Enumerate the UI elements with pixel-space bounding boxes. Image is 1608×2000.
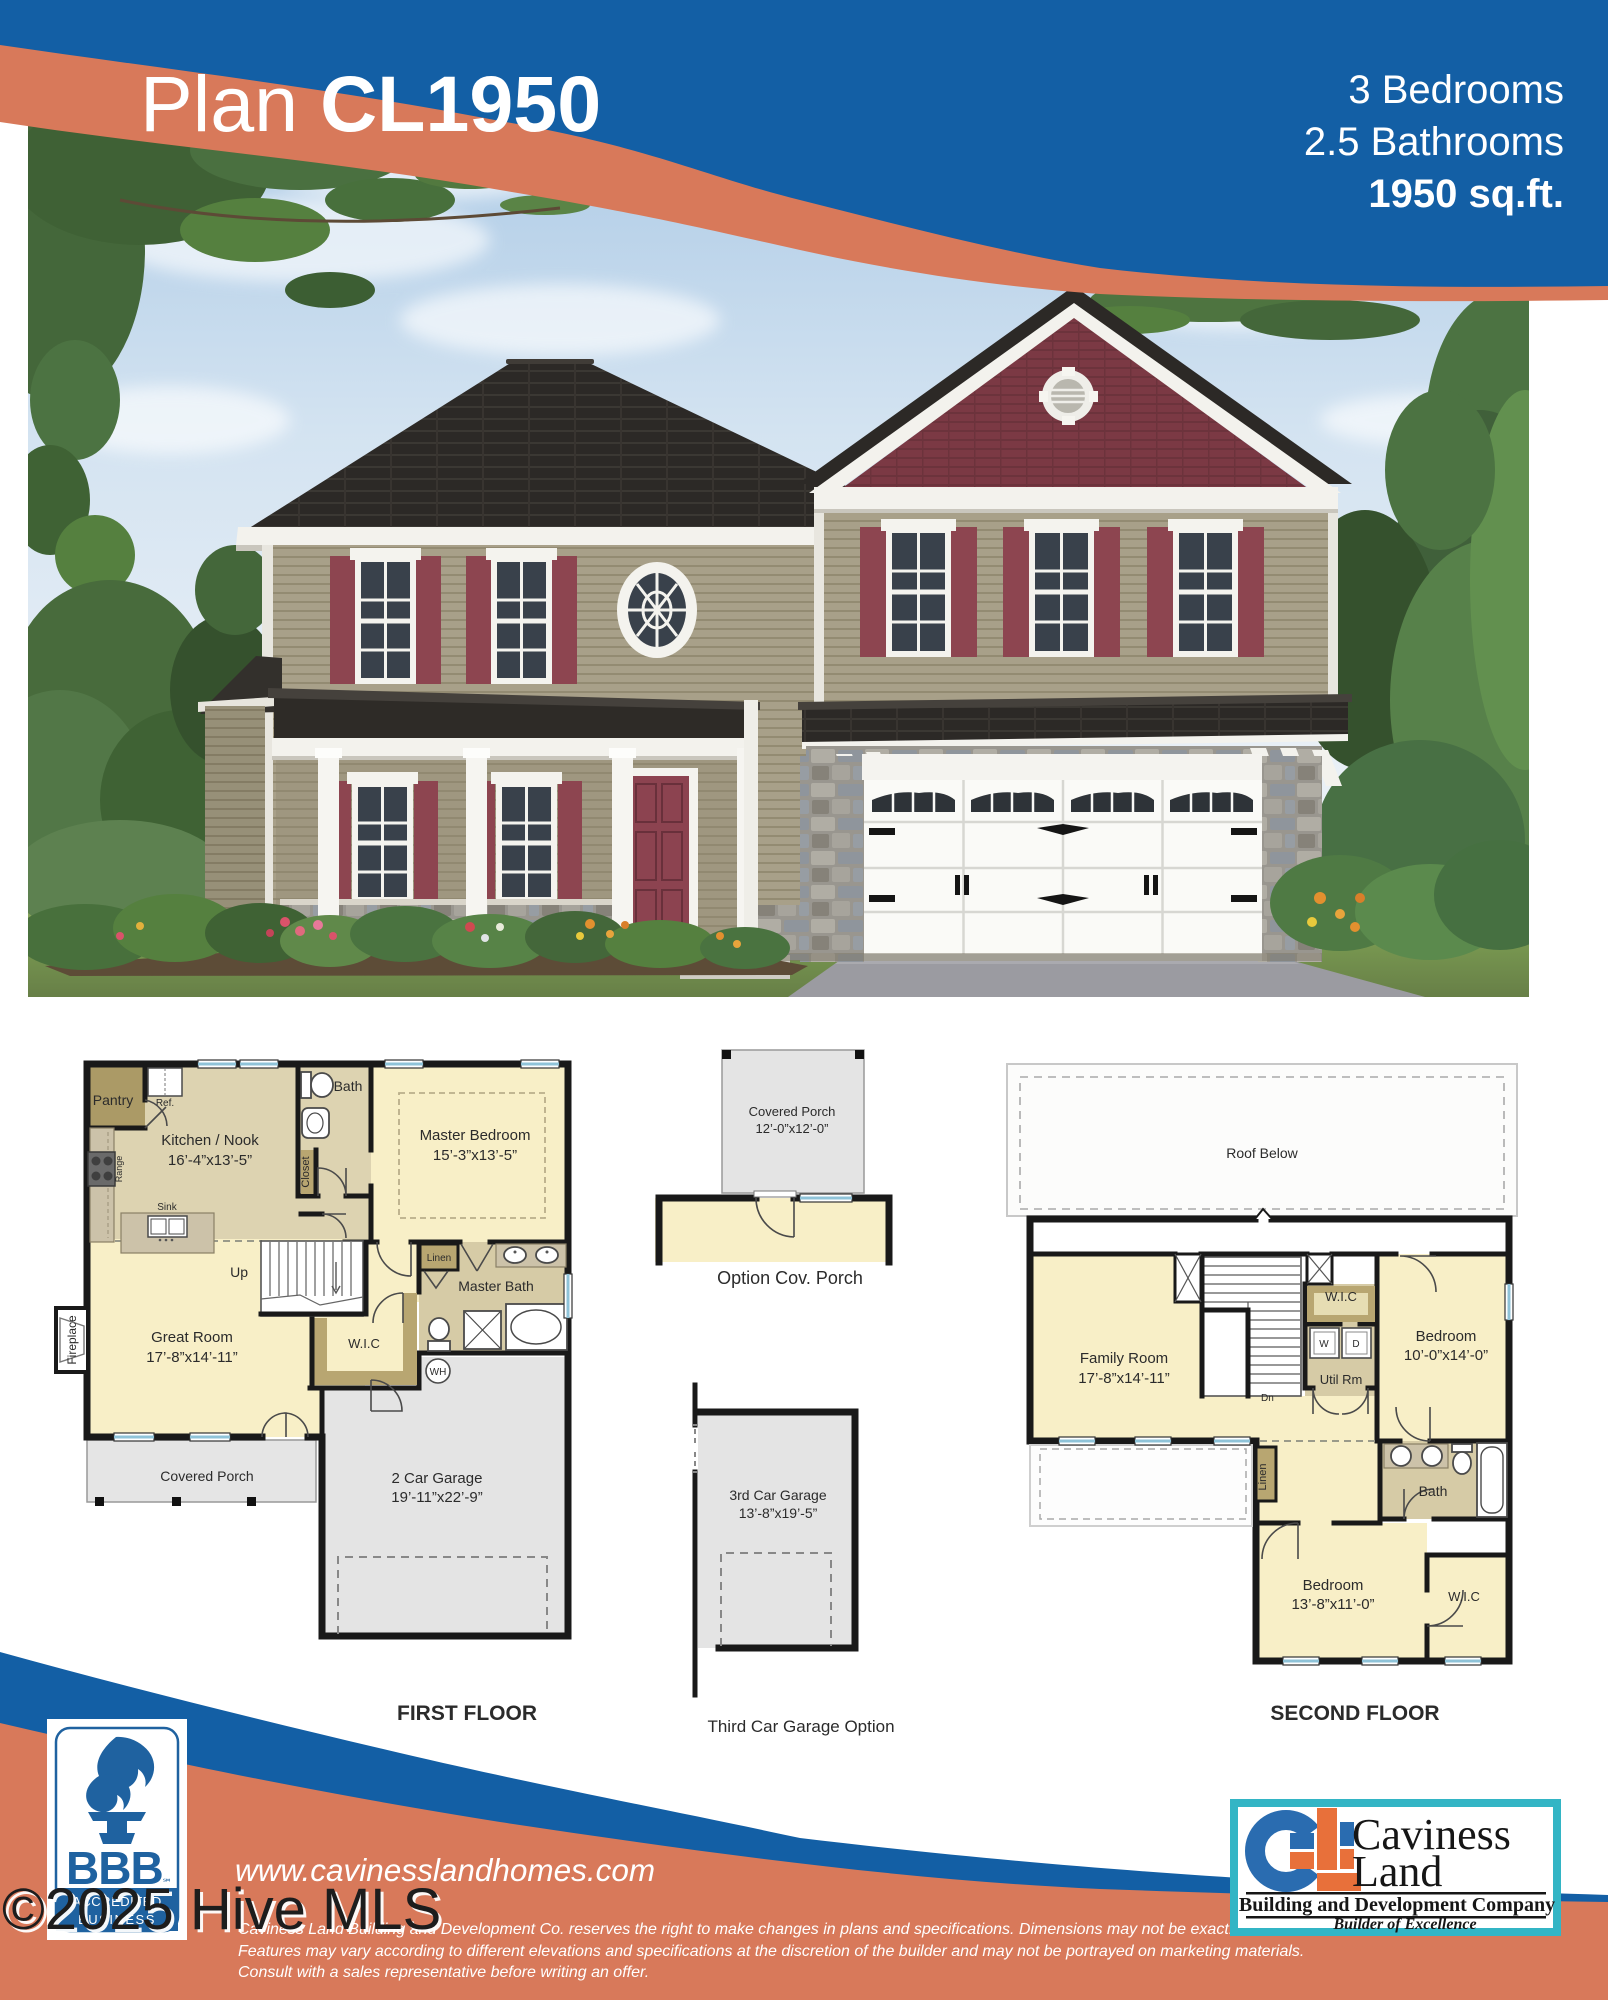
svg-text:Kitchen / Nook: Kitchen / Nook xyxy=(161,1132,259,1149)
svg-text:17’-8”x14’-11”: 17’-8”x14’-11” xyxy=(146,1349,237,1366)
svg-text:Bath: Bath xyxy=(334,1078,363,1094)
svg-text:3 Bedrooms: 3 Bedrooms xyxy=(1348,68,1564,112)
svg-text:Sink: Sink xyxy=(157,1202,177,1213)
svg-text:W.I.C: W.I.C xyxy=(348,1336,380,1351)
svg-text:1950 sq.ft.: 1950 sq.ft. xyxy=(1368,172,1564,216)
svg-text:Land: Land xyxy=(1352,1847,1442,1896)
svg-text:15’-3”x13’-5”: 15’-3”x13’-5” xyxy=(433,1147,517,1164)
svg-text:16’-4”x13’-5”: 16’-4”x13’-5” xyxy=(168,1152,252,1169)
svg-text:Pantry: Pantry xyxy=(93,1092,133,1108)
svg-text:Roof Below: Roof Below xyxy=(1226,1145,1298,1161)
svg-text:Range: Range xyxy=(114,1156,124,1183)
svg-text:Option Cov. Porch: Option Cov. Porch xyxy=(717,1268,863,1288)
svg-text:Plan CL1950: Plan CL1950 xyxy=(140,59,601,148)
svg-text:Linen: Linen xyxy=(427,1253,451,1264)
svg-text:Util Rm: Util Rm xyxy=(1320,1372,1363,1387)
svg-text:Closet: Closet xyxy=(300,1156,312,1187)
svg-text:D: D xyxy=(1352,1339,1359,1350)
svg-text:Builder of Excellence: Builder of Excellence xyxy=(1332,1916,1476,1933)
svg-text:19’-11”x22’-9”: 19’-11”x22’-9” xyxy=(391,1489,482,1506)
svg-text:Fireplace: Fireplace xyxy=(65,1315,79,1365)
svg-text:Family Room: Family Room xyxy=(1080,1350,1168,1367)
svg-text:Covered Porch: Covered Porch xyxy=(749,1104,836,1119)
svg-text:Linen: Linen xyxy=(1257,1464,1269,1491)
svg-text:Dn: Dn xyxy=(1261,1393,1274,1404)
svg-text:13’-8”x19’-5”: 13’-8”x19’-5” xyxy=(739,1505,818,1521)
svg-text:2.5 Bathrooms: 2.5 Bathrooms xyxy=(1304,120,1564,164)
svg-text:Features may vary according to: Features may vary according to different… xyxy=(238,1943,1304,1960)
svg-text:WH: WH xyxy=(430,1367,447,1378)
svg-text:17’-8”x14’-11”: 17’-8”x14’-11” xyxy=(1078,1370,1169,1387)
svg-text:Covered Porch: Covered Porch xyxy=(160,1468,253,1484)
svg-text:W: W xyxy=(1319,1339,1329,1350)
svg-text:Master Bath: Master Bath xyxy=(458,1278,533,1294)
svg-text:13’-8”x11’-0”: 13’-8”x11’-0” xyxy=(1291,1596,1374,1613)
svg-text:3rd Car Garage: 3rd Car Garage xyxy=(729,1487,826,1503)
svg-text:Bath: Bath xyxy=(1419,1483,1448,1499)
svg-text:Bedroom: Bedroom xyxy=(1416,1328,1477,1345)
svg-text:Up: Up xyxy=(230,1264,248,1280)
svg-text:10’-0”x14’-0”: 10’-0”x14’-0” xyxy=(1404,1347,1488,1364)
svg-text:Master Bedroom: Master Bedroom xyxy=(420,1127,531,1144)
svg-text:Bedroom: Bedroom xyxy=(1303,1577,1364,1594)
svg-text:W.I.C: W.I.C xyxy=(1448,1589,1480,1604)
svg-text:Building and Development Compa: Building and Development Company xyxy=(1239,1894,1555,1916)
svg-text:2 Car Garage: 2 Car Garage xyxy=(392,1470,483,1487)
svg-text:Great Room: Great Room xyxy=(151,1329,233,1346)
svg-text:W.I.C: W.I.C xyxy=(1325,1289,1357,1304)
svg-text:Consult with a sales represent: Consult with a sales representative befo… xyxy=(238,1964,649,1981)
svg-text:12’-0”x12’-0”: 12’-0”x12’-0” xyxy=(756,1121,829,1136)
